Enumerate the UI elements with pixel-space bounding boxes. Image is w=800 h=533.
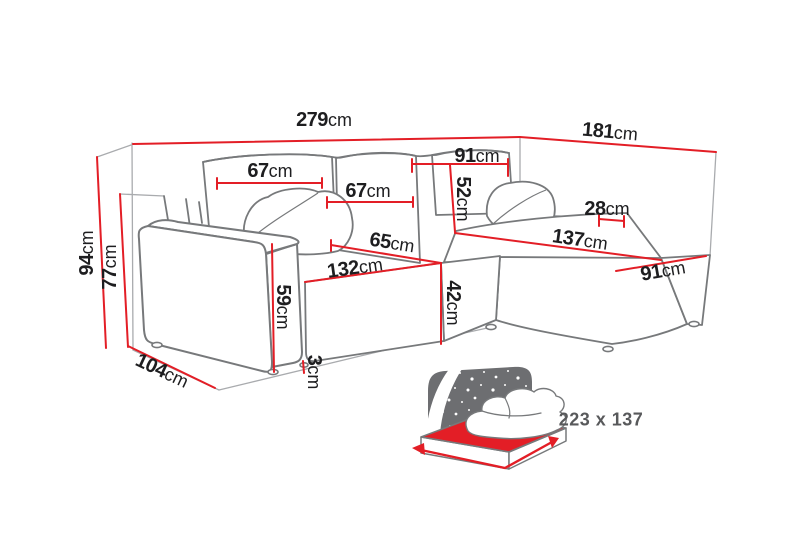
dim-label-frame-height: 77cm bbox=[100, 244, 120, 289]
dim-unit: cm bbox=[304, 365, 324, 389]
dim-label-total-height: 94cm bbox=[77, 230, 97, 275]
dim-value: 3 bbox=[303, 355, 325, 366]
dim-label-leg-height: 3cm bbox=[304, 355, 324, 390]
dim-value: 77 bbox=[99, 268, 121, 289]
dim-unit: cm bbox=[606, 199, 630, 219]
dim-unit: cm bbox=[453, 198, 473, 222]
dim-value: 52 bbox=[452, 176, 474, 197]
dim-value: 94 bbox=[76, 254, 98, 275]
sleeping-function-icon bbox=[412, 367, 566, 469]
dim-label-armrest-height: 59cm bbox=[273, 284, 293, 329]
dim-value: 67 bbox=[345, 180, 366, 202]
armrest-front-face bbox=[139, 226, 272, 372]
dim-label-total-width: 279cm bbox=[296, 110, 352, 130]
dim-value: 181 bbox=[581, 119, 615, 144]
dim-value: 67 bbox=[247, 160, 268, 182]
sofa-dimension-diagram: 279cm 181cm 91cm 67cm 67cm 52cm 28cm 137… bbox=[0, 0, 800, 533]
dim-unit: cm bbox=[389, 233, 416, 257]
dim-unit: cm bbox=[443, 302, 463, 326]
dim-value: 28 bbox=[584, 198, 605, 220]
dim-unit: cm bbox=[367, 181, 391, 201]
dim-label-back-cushion-height: 52cm bbox=[453, 176, 473, 221]
dim-label-cushion-left: 67cm bbox=[247, 161, 292, 181]
seat-front-face bbox=[305, 263, 444, 361]
sleeping-area-size: 223 x 137 bbox=[559, 410, 644, 431]
dim-unit: cm bbox=[100, 244, 120, 268]
dim-value: 279 bbox=[296, 109, 328, 131]
dim-label-armrest-width: 28cm bbox=[584, 199, 629, 219]
dim-unit: cm bbox=[269, 161, 293, 181]
dim-label-cushion-mid: 67cm bbox=[345, 181, 390, 201]
dim-unit: cm bbox=[613, 122, 639, 144]
dim-label-total-depth: 181cm bbox=[581, 120, 638, 145]
dim-label-back-cushion-width: 91cm bbox=[454, 146, 499, 166]
dim-value: 132 bbox=[326, 257, 361, 283]
dim-unit: cm bbox=[328, 110, 352, 130]
dim-value: 42 bbox=[442, 280, 464, 301]
dim-label-seat-height: 42cm bbox=[443, 280, 463, 325]
dim-unit: cm bbox=[660, 257, 687, 281]
dim-unit: cm bbox=[476, 146, 500, 166]
dim-unit: cm bbox=[583, 231, 610, 254]
dim-unit: cm bbox=[273, 306, 293, 330]
dim-value: 91 bbox=[454, 145, 475, 167]
dim-unit: cm bbox=[358, 254, 385, 277]
dim-value: 59 bbox=[272, 284, 294, 305]
dim-value: 137 bbox=[551, 225, 586, 251]
dim-unit: cm bbox=[77, 230, 97, 254]
